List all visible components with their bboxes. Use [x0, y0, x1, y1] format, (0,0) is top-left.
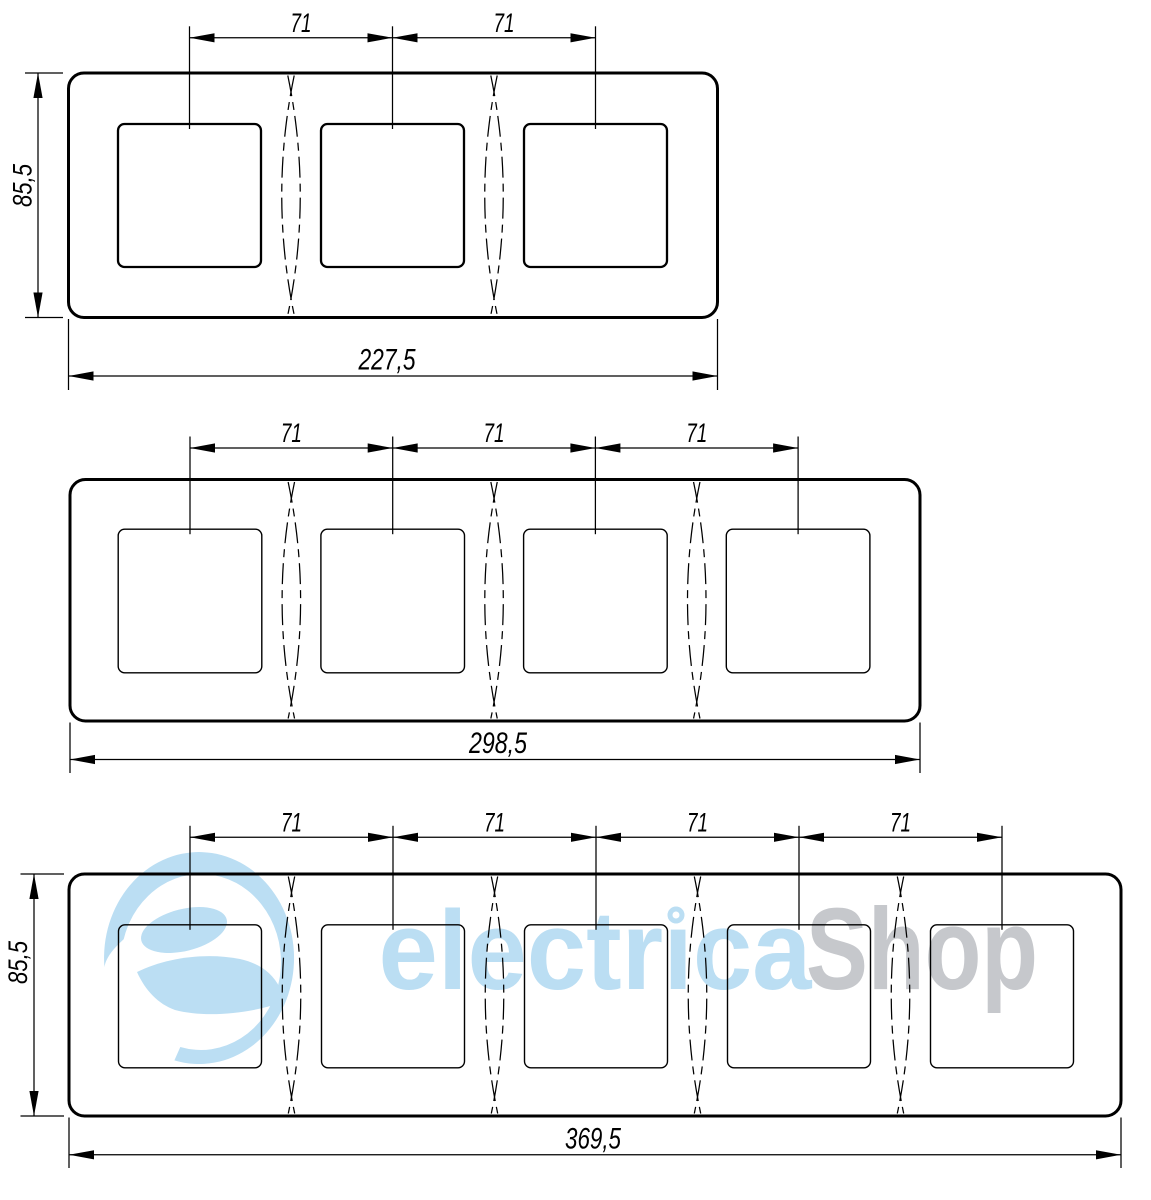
svg-text:85,5: 85,5: [8, 163, 38, 207]
svg-text:71: 71: [281, 807, 302, 837]
svg-text:369,5: 369,5: [565, 1122, 621, 1155]
svg-text:71: 71: [686, 418, 707, 448]
svg-text:71: 71: [687, 807, 708, 837]
svg-text:298,5: 298,5: [468, 727, 527, 760]
svg-text:85,5: 85,5: [3, 940, 33, 984]
svg-text:Shop: Shop: [806, 884, 1038, 1014]
svg-text:227,5: 227,5: [358, 344, 416, 377]
svg-text:71: 71: [484, 418, 505, 448]
svg-text:71: 71: [281, 418, 302, 448]
svg-text:71: 71: [291, 8, 312, 38]
svg-text:71: 71: [484, 807, 505, 837]
svg-text:electrıca: electrıca: [379, 888, 813, 1013]
svg-text:71: 71: [890, 807, 911, 837]
svg-text:71: 71: [494, 8, 515, 38]
